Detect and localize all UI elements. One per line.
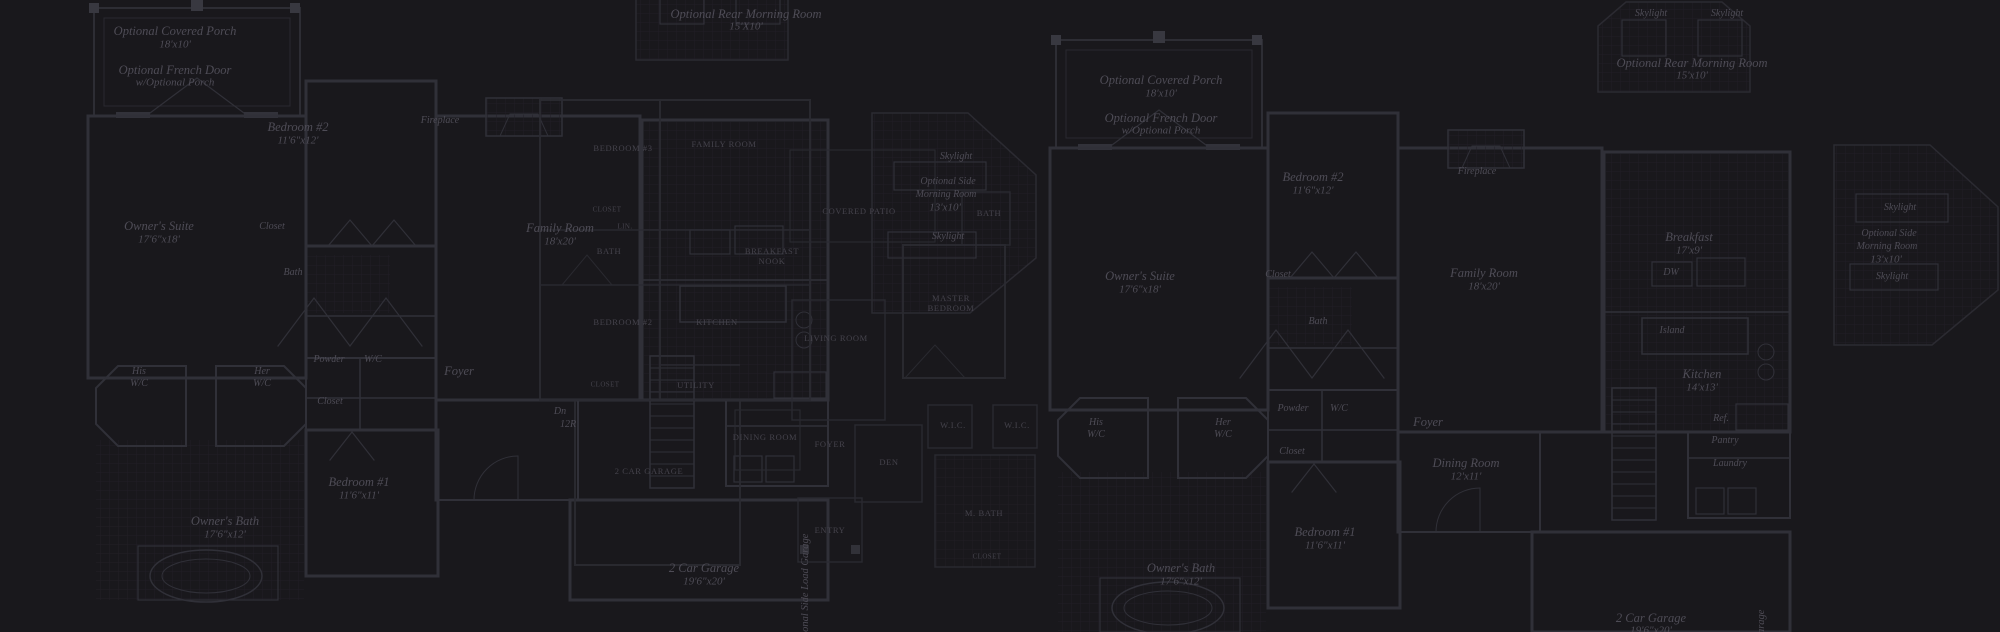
room-label: W/C — [130, 379, 148, 389]
room-label: Bath — [1309, 317, 1328, 327]
room-label: Family Room — [526, 222, 594, 235]
room-label: W/C — [1214, 430, 1232, 440]
room-label: DW — [1663, 268, 1679, 278]
room-label: BREAKFAST — [745, 247, 799, 256]
room-label: 2 CAR GARAGE — [615, 467, 684, 476]
room-label: Closet — [1265, 270, 1291, 280]
room-label: Foyer — [1413, 416, 1443, 429]
room-label: 13'x10' — [1870, 255, 1902, 266]
room-label: Island — [1660, 326, 1685, 336]
room-label: BEDROOM — [928, 304, 975, 313]
room-label: Dining Room — [1432, 457, 1499, 470]
room-label: W/C — [1087, 430, 1105, 440]
room-label: Pantry — [1711, 436, 1738, 446]
room-label: Morning Room — [1857, 242, 1918, 252]
room-label: Optional Covered Porch — [114, 25, 237, 38]
room-label: Closet — [1279, 447, 1305, 457]
room-label: 11'6"x12' — [278, 136, 319, 147]
room-label: w/Optional Porch — [136, 78, 215, 89]
room-label: COVERED PATIO — [822, 207, 895, 216]
room-label: Optional French Door — [119, 64, 232, 77]
room-label: Owner's Suite — [124, 220, 194, 233]
room-label: 18'x10' — [159, 40, 191, 51]
room-label: Bedroom #2 — [1283, 171, 1344, 184]
room-label: Bath — [284, 268, 303, 278]
room-label: DEN — [879, 458, 898, 467]
room-label: Kitchen — [1683, 368, 1722, 381]
room-label: Bedroom #1 — [1295, 526, 1356, 539]
room-label: 11'6"x11' — [339, 491, 379, 502]
room-label: LIN. — [617, 224, 632, 231]
room-label: Ref. — [1713, 414, 1729, 424]
room-label: Bedroom #2 — [268, 121, 329, 134]
room-label: w/Optional Porch — [1122, 126, 1201, 137]
room-label: Her — [254, 367, 270, 377]
room-label: His — [1089, 418, 1103, 428]
room-label: Optional Side — [920, 177, 975, 187]
room-label: 15'x10' — [1676, 71, 1708, 82]
room-label: Skylight — [1711, 9, 1743, 19]
room-label: UTILITY — [677, 381, 715, 390]
room-label: Morning Room — [916, 190, 977, 200]
room-label: DINING ROOM — [733, 433, 797, 442]
room-label: MASTER — [932, 294, 970, 303]
room-label: Skylight — [940, 152, 972, 162]
room-label: W/C — [1330, 404, 1348, 414]
room-label: 2 Car Garage — [669, 562, 739, 575]
room-labels-layer: Optional Covered Porch18'x10'Optional Fr… — [0, 0, 2000, 632]
blueprint-canvas: Optional Covered Porch18'x10'Optional Fr… — [0, 0, 2000, 632]
room-label: Powder — [313, 355, 344, 365]
room-label: W/C — [253, 379, 271, 389]
room-label: Owner's Suite — [1105, 270, 1175, 283]
room-label: Optional Side Load Garage — [1757, 610, 1768, 632]
room-label: 18'x20' — [1468, 282, 1500, 293]
room-label: Skylight — [1635, 9, 1667, 19]
room-label: 18'x20' — [544, 237, 576, 248]
room-label: Family Room — [1450, 267, 1518, 280]
room-label: Powder — [1277, 404, 1308, 414]
room-label: 17'6"x12' — [1160, 577, 1202, 588]
room-label: BATH — [597, 247, 622, 256]
room-label: 15'X10' — [729, 22, 762, 33]
room-label: Fireplace — [1458, 167, 1497, 177]
room-label: 17'x9' — [1676, 246, 1702, 257]
room-label: Dn — [554, 407, 566, 417]
room-label: ENTRY — [815, 526, 846, 535]
room-label: Laundry — [1713, 459, 1747, 469]
room-label: NOOK — [759, 257, 786, 266]
room-label: Skylight — [1884, 203, 1916, 213]
room-label: M. BATH — [965, 509, 1003, 518]
room-label: Optional Rear Morning Room — [670, 8, 821, 21]
room-label: BEDROOM #3 — [593, 144, 652, 153]
room-label: Closet — [317, 397, 343, 407]
room-label: Optional French Door — [1105, 112, 1218, 125]
room-label: 12'x11' — [1451, 472, 1482, 483]
room-label: KITCHEN — [696, 318, 738, 327]
room-label: 11'6"x12' — [1293, 186, 1334, 197]
room-label: BEDROOM #2 — [593, 318, 652, 327]
room-label: 17'6"x12' — [204, 530, 246, 541]
room-label: Optional Covered Porch — [1100, 74, 1223, 87]
room-label: 2 Car Garage — [1616, 612, 1686, 625]
room-label: 13'x10' — [929, 203, 961, 214]
room-label: Bedroom #1 — [329, 476, 390, 489]
room-label: 17'6"x18' — [1119, 285, 1161, 296]
room-label: His — [132, 367, 146, 377]
room-label: W/C — [364, 355, 382, 365]
room-label: FAMILY ROOM — [691, 140, 756, 149]
room-label: LIVING ROOM — [804, 334, 868, 343]
room-label: 12R — [560, 420, 576, 430]
room-label: CLOSET — [593, 207, 622, 214]
room-label: W.I.C. — [940, 421, 966, 430]
room-label: Optional Rear Morning Room — [1616, 57, 1767, 70]
room-label: CLOSET — [591, 382, 620, 389]
room-label: Skylight — [932, 232, 964, 242]
room-label: 19'6"x20' — [1630, 626, 1672, 632]
room-label: Her — [1215, 418, 1231, 428]
room-label: 14'x13' — [1686, 383, 1718, 394]
room-label: 17'6"x18' — [138, 235, 180, 246]
room-label: BATH — [977, 209, 1002, 218]
room-label: Fireplace — [421, 116, 460, 126]
room-label: Breakfast — [1665, 231, 1712, 244]
room-label: Optional Side Load Garage — [801, 534, 812, 632]
room-label: Skylight — [1876, 272, 1908, 282]
room-label: 11'6"x11' — [1305, 541, 1345, 552]
room-label: W.I.C. — [1004, 421, 1030, 430]
room-label: 19'6"x20' — [683, 577, 725, 588]
room-label: Owner's Bath — [1147, 562, 1215, 575]
room-label: Foyer — [444, 365, 474, 378]
room-label: 18'x10' — [1145, 89, 1177, 100]
room-label: FOYER — [815, 440, 846, 449]
room-label: CLOSET — [973, 554, 1002, 561]
room-label: Owner's Bath — [191, 515, 259, 528]
room-label: Optional Side — [1861, 229, 1916, 239]
room-label: Closet — [259, 222, 285, 232]
